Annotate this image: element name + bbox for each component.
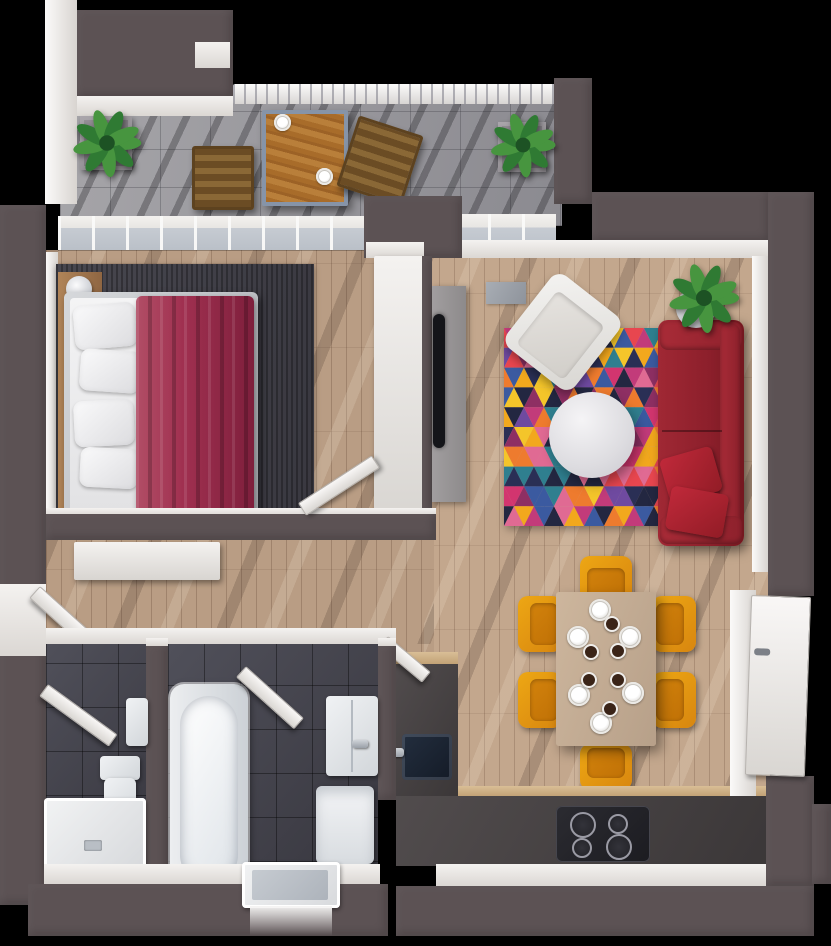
bed-pillow: [72, 301, 138, 350]
chair-seat: [530, 603, 558, 645]
balcony-plate: [274, 114, 291, 131]
bath-divider-wall: [146, 644, 168, 884]
hall-sideboard: [74, 542, 220, 580]
shower-tray-base: [252, 870, 328, 900]
living-plant: [664, 258, 744, 338]
bedroom-window-band: [58, 216, 390, 250]
sofa-seam: [662, 430, 722, 432]
wall-left-outer: [0, 205, 46, 905]
dinner-plate: [622, 682, 644, 704]
wall-right-step: [812, 804, 831, 884]
balcony-plant-2: [486, 108, 560, 182]
dining-chair-right-1: [652, 596, 696, 652]
burner: [572, 838, 592, 858]
balcony-railing: [233, 84, 563, 104]
wall-bottom: [396, 886, 814, 936]
bathroom-north-lining: [46, 628, 396, 644]
door-handle: [754, 648, 770, 656]
coffee-cup: [604, 616, 620, 632]
bed-pillow: [79, 348, 142, 394]
coffee-cup: [610, 643, 626, 659]
bathroom-east-cap: [378, 638, 396, 646]
bed-pillow: [79, 447, 139, 490]
shower-drain: [84, 840, 102, 851]
burner: [608, 814, 628, 834]
washing-machine: [316, 786, 374, 864]
bathtub-basin: [180, 696, 238, 884]
chair-seat: [656, 679, 684, 721]
kitchen-south-lining: [436, 864, 770, 886]
chair-seat: [530, 679, 558, 721]
cooktop: [556, 806, 650, 862]
counter-top-edge: [458, 786, 770, 796]
tv-screen: [433, 314, 445, 448]
divider-wall-strip: [422, 256, 432, 530]
chair-seat: [587, 748, 625, 778]
burner: [570, 812, 596, 838]
bathroom-faucet: [352, 740, 368, 748]
coffee-cup: [610, 672, 626, 688]
toilet-tank: [100, 756, 140, 780]
bed-pillow: [73, 398, 135, 447]
coffee-cup: [583, 644, 599, 660]
bathroom-east-wall: [378, 644, 396, 800]
balcony-wooden-chair: [192, 146, 254, 210]
wc-wall-cabinet: [126, 698, 148, 746]
bed-red-blanket: [136, 296, 254, 522]
dining-chair-bottom: [580, 744, 632, 790]
fridge-door-open: [745, 595, 811, 777]
living-top-lining: [432, 240, 770, 258]
kitchen-sink: [402, 734, 452, 780]
bedroom-wardrobe: [374, 256, 424, 524]
wall-top-right: [592, 192, 770, 242]
wall-right-lower: [766, 776, 814, 886]
wall-right-upper: [768, 192, 814, 596]
balcony-plate: [316, 168, 333, 185]
bath-divider-cap: [146, 638, 168, 646]
wall-bedroom-south: [46, 514, 436, 540]
red-sofa: [658, 320, 744, 546]
living-right-lining: [752, 256, 768, 572]
wc-shower-tray: [44, 798, 146, 868]
coffee-cup: [602, 701, 618, 717]
dining-chair-right-2: [652, 672, 696, 728]
entry-step: [250, 906, 332, 936]
chair-seat: [656, 603, 684, 645]
burner: [606, 834, 632, 860]
balcony-door-mat: [486, 282, 526, 304]
wall-top-left-cap: [195, 42, 230, 68]
floor-plan-scene: [0, 0, 831, 946]
vanity-door-split: [351, 700, 353, 772]
balcony-plant-1: [68, 104, 146, 182]
coffee-cup: [581, 672, 597, 688]
round-coffee-table: [549, 392, 635, 478]
